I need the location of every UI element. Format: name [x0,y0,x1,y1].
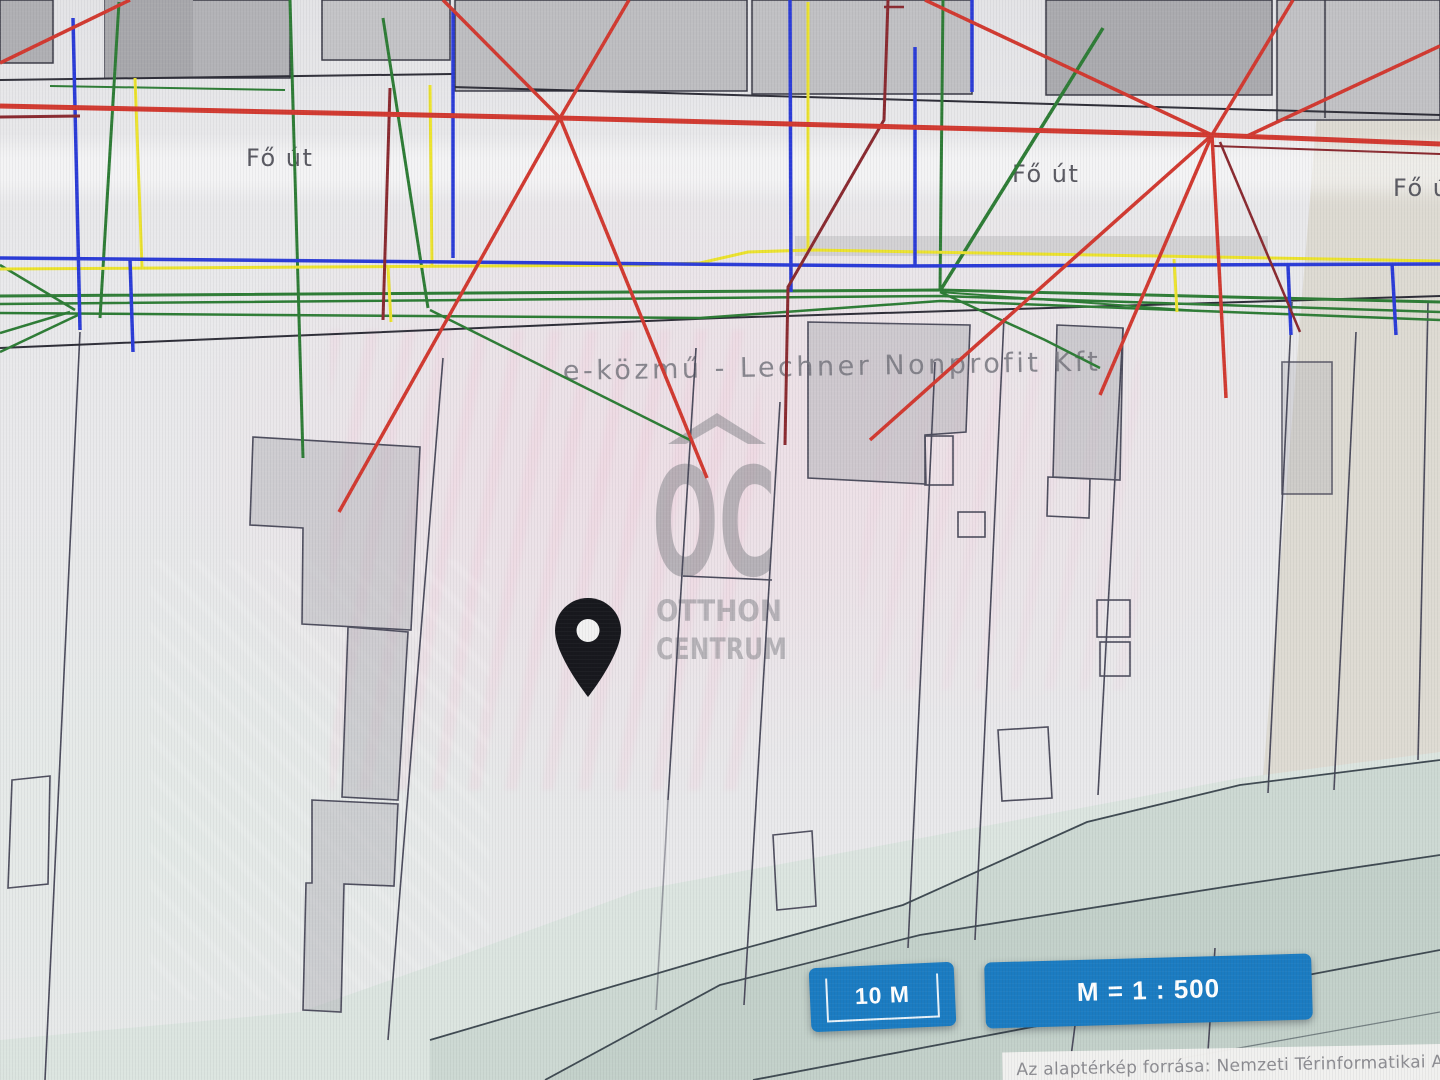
logo-word-1: OTTHON [656,594,782,628]
map-viewport[interactable]: e-közmű - Lechner Nonprofit Kft OC OTTHO… [0,0,1440,1080]
buildings-top-row [0,0,1440,256]
scale-bar-button[interactable]: 10 M [809,962,957,1033]
scale-ratio-button[interactable]: M = 1 : 500 [984,953,1313,1028]
street-label: Fő út [1393,174,1440,202]
street-label: Fő út [1012,160,1079,188]
scale-bar-label: 10 M [854,981,910,1013]
street-label: Fő út [246,144,313,172]
provider-watermark: e-közmű - Lechner Nonprofit Kft [563,347,1102,387]
map-canvas: e-közmű - Lechner Nonprofit Kft OC OTTHO… [0,0,1440,1080]
logo-initials: OC [652,437,776,611]
attribution-text: Az alaptérkép forrása: Nemzeti Térinform… [1016,1052,1440,1080]
logo-word-2: CENTRUM [656,632,787,666]
scale-ratio-label: M = 1 : 500 [1076,973,1220,1010]
location-pin-icon[interactable] [555,598,621,697]
